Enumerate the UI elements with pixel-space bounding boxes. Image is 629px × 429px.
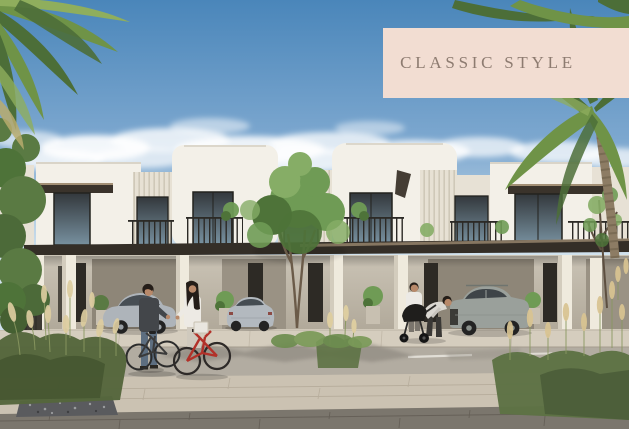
canopy-awning-right xyxy=(508,184,608,194)
banner-label: CLASSIC STYLE xyxy=(400,53,576,73)
style-banner: CLASSIC STYLE xyxy=(383,28,629,98)
scene-render: CLASSIC STYLE xyxy=(0,0,629,429)
